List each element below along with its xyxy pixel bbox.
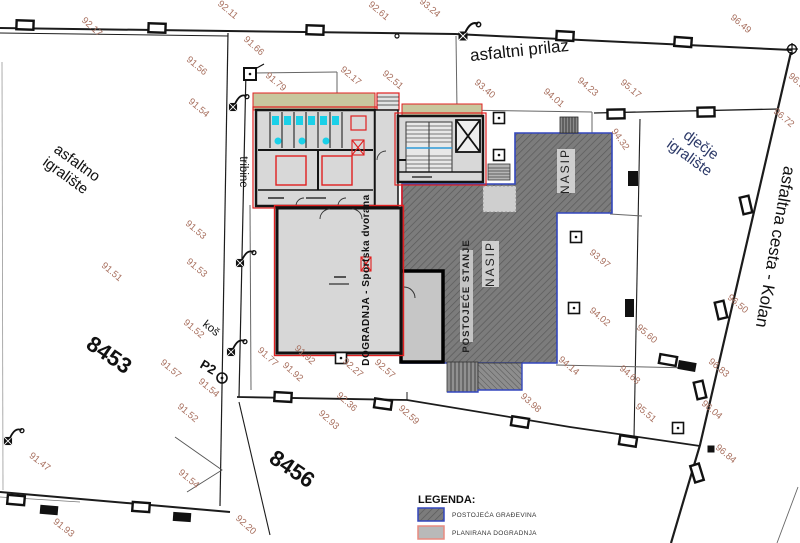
survey-point (673, 423, 684, 434)
street-lamp-icon (227, 340, 247, 356)
legend-swatch-planned (418, 526, 444, 539)
parcel-8456-label: 8456 (265, 445, 320, 493)
p2-label: P2 (198, 357, 219, 378)
south-stairs (447, 362, 522, 392)
spot-elevation: 91.53 (184, 256, 209, 280)
spot-elevation: 93.97 (587, 247, 612, 271)
boundary-marker (674, 37, 692, 47)
postojece-stanje-label: POSTOJEĆE STANJE (460, 239, 472, 352)
spot-elevation: 92.17 (79, 15, 104, 39)
legend-title: LEGENDA: (418, 494, 475, 506)
dogradnja-label: DOGRADNJA - Sportska dvorana (361, 194, 372, 365)
spot-elevation: 92.93 (316, 408, 341, 432)
survey-point (494, 150, 505, 161)
legend-item-existing: POSTOJEĆA GRAĐEVINA (452, 510, 537, 519)
gate-marker (628, 171, 638, 186)
boundary-marker (7, 495, 25, 505)
legend: LEGENDA: POSTOJEĆA GRAĐEVINA PLANIRANA D… (418, 494, 537, 539)
site-plan: NASIP NASIP POSTOJEĆE STANJE DOGRADNJA -… (0, 0, 800, 543)
spot-elevation: 92.57 (372, 357, 397, 381)
street-lamp-icon (236, 251, 256, 267)
west-exterior-stairs (488, 164, 510, 180)
boundary-marker (690, 464, 704, 483)
spot-elevation: 91.54 (176, 467, 201, 491)
asfaltno-igraliste-label: asfaltno igralište (40, 140, 107, 202)
survey-point (571, 232, 582, 243)
elevator (456, 120, 480, 152)
boundary-marker (740, 196, 753, 215)
boundary-marker-filled (173, 512, 192, 522)
spot-elevation: 92.61 (366, 0, 391, 23)
spot-elevation: 91.57 (158, 357, 183, 381)
spot-elevation: 96.04 (699, 398, 724, 422)
boundary-marker (715, 301, 728, 320)
south-ramp (478, 363, 522, 390)
spot-elevation: 91.79 (263, 70, 288, 94)
gate-marker (625, 299, 634, 317)
spot-elevation: 91.52 (181, 317, 206, 341)
spot-elevation: 96.50 (725, 292, 750, 316)
spot-elevation: 92.36 (334, 390, 359, 414)
spot-elevation: 91.53 (183, 218, 208, 242)
boundary-marker (16, 20, 33, 30)
spot-elevation: 91.54 (186, 96, 211, 120)
street-lamp-icon (459, 22, 481, 40)
spot-elevation: 95.60 (634, 322, 659, 346)
spot-elevation: 94.02 (587, 305, 612, 329)
boundary-marker (306, 25, 323, 35)
playground-west-fence (634, 119, 640, 438)
spot-elevation: 92.59 (396, 403, 421, 427)
spot-elevation: 91.93 (51, 516, 77, 539)
north-stairs (560, 117, 578, 133)
spot-elevation: 95.51 (633, 401, 658, 425)
sports-hall (275, 206, 404, 356)
legend-item-planned: PLANIRANA DOGRADNJA (452, 530, 537, 537)
stairwell-building (395, 113, 486, 185)
spot-elevation: 91.56 (184, 54, 209, 78)
road-east-edge (777, 487, 798, 543)
spot-elevation: 93.24 (417, 0, 442, 20)
boundary-marker (619, 435, 637, 447)
spot-elevation: 91.51 (99, 260, 124, 284)
legend-swatch-existing (418, 508, 444, 521)
boundary-marker (148, 23, 165, 33)
inner-room (401, 271, 443, 362)
southwest-fence (0, 492, 230, 512)
street-lamp-icon (4, 429, 24, 445)
entry-stairs (377, 93, 399, 110)
road-junction-symbol (786, 43, 798, 55)
djecje-igraliste-label: dječje igralište (664, 122, 726, 180)
spot-elevation: 96.9 (786, 71, 800, 91)
boundary-marker (511, 416, 529, 428)
spot-elevation: 93.98 (518, 391, 543, 415)
spot-elevation: 95.17 (618, 77, 643, 101)
nasip-label-main: NASIP (483, 241, 497, 287)
spot-elevation: 91.66 (241, 34, 266, 58)
staircase (406, 122, 452, 172)
spot-elevation: 91.52 (175, 401, 200, 425)
spot-elevation: 93.40 (472, 77, 497, 101)
spot-elevation: 92.20 (233, 513, 258, 537)
stairs-landing-notch (483, 186, 516, 212)
boundary-marker (697, 107, 714, 116)
spot-elevation: 96.49 (728, 12, 753, 36)
spot-elevation: 91.92 (280, 360, 305, 384)
flag-survey-point (244, 64, 264, 80)
parcel-8453-label: 8453 (82, 331, 137, 379)
boundary-marker (607, 109, 624, 118)
spot-elevation: 92.11 (215, 0, 240, 22)
survey-point (569, 303, 580, 314)
asfaltni-prilaz-label: asfaltni prilaz (469, 36, 570, 65)
spot-elevation: 91.47 (27, 450, 53, 473)
boundary-marker-filled (677, 360, 696, 372)
spot-elevation: 94.01 (541, 86, 566, 110)
tribine-label: tribine (237, 156, 249, 187)
spot-elevation: 94.14 (556, 354, 581, 378)
boundary-marker (274, 392, 291, 402)
north-fence-inner (0, 33, 228, 36)
spot-elevation: 96.83 (706, 356, 731, 380)
boundary-marker (694, 381, 707, 400)
west-strip-line-1 (220, 33, 228, 506)
spot-elevation: 92.51 (380, 68, 405, 92)
spot-elevation: 92.17 (338, 64, 363, 88)
boundary-marker-filled (40, 505, 59, 516)
survey-point (494, 113, 505, 124)
terrace-strip-east (402, 104, 482, 116)
fence-tick (395, 34, 399, 38)
boundary-marker (659, 354, 677, 366)
spot-elevation: 96.84 (713, 442, 738, 466)
boundary-marker (132, 502, 150, 512)
west-strip-line-2 (239, 70, 246, 397)
spot-elevation: 94.23 (575, 75, 600, 99)
locker-building (253, 107, 377, 208)
boundary-marker (374, 398, 392, 409)
nasip-label-upper: NASIP (558, 148, 572, 194)
left-edge-line (2, 62, 3, 490)
